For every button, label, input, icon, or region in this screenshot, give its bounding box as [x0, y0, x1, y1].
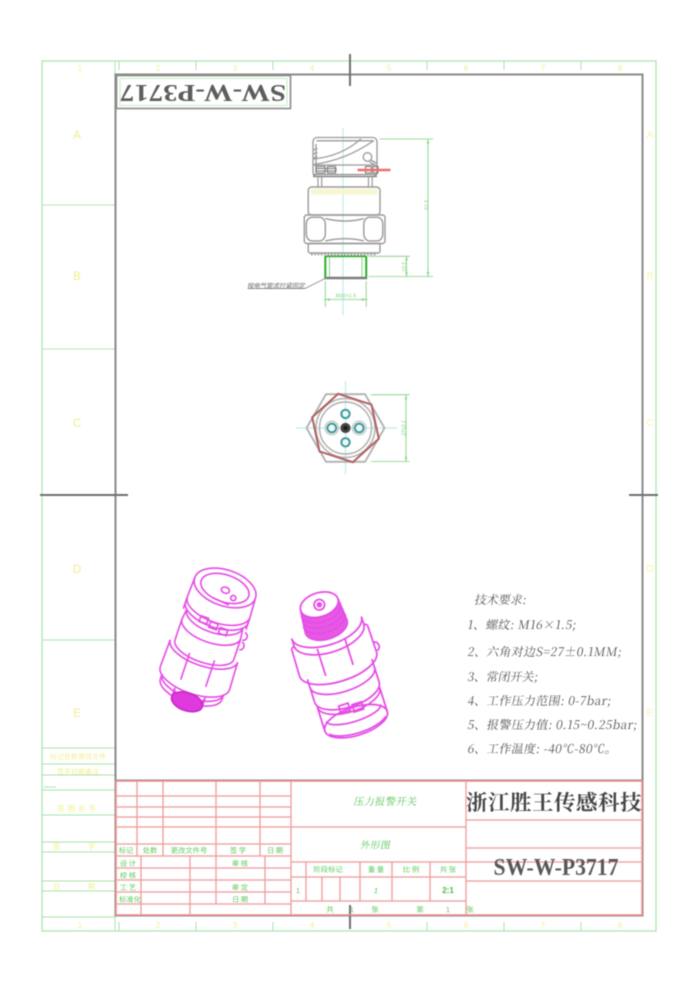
- svg-text:D: D: [646, 564, 653, 575]
- svg-text:B: B: [73, 271, 81, 283]
- svg-text:7: 7: [541, 63, 546, 73]
- svg-text:51.5: 51.5: [425, 200, 431, 210]
- svg-text:1: 1: [374, 886, 378, 895]
- svg-text:SW-W-P3717: SW-W-P3717: [494, 855, 619, 881]
- svg-text:C: C: [646, 418, 653, 429]
- svg-text:1: 1: [446, 907, 450, 914]
- svg-text:6: 6: [464, 920, 469, 930]
- svg-text:7: 7: [541, 920, 546, 930]
- svg-text:10.5: 10.5: [402, 262, 408, 272]
- svg-text:E: E: [647, 708, 654, 719]
- svg-text:B: B: [647, 271, 654, 282]
- svg-text:2:1: 2:1: [442, 886, 454, 895]
- svg-text:5: 5: [387, 920, 392, 930]
- svg-text:3: 3: [233, 920, 238, 930]
- svg-text:1: 1: [350, 907, 354, 914]
- svg-text:1: 1: [78, 63, 83, 73]
- svg-text:27±0.1: 27±0.1: [402, 420, 408, 436]
- svg-text:1: 1: [296, 886, 300, 895]
- svg-text:C: C: [73, 418, 81, 430]
- svg-text:6: 6: [464, 63, 469, 73]
- svg-text:2: 2: [156, 63, 161, 73]
- svg-text:8: 8: [618, 63, 623, 73]
- svg-text:A: A: [647, 130, 654, 141]
- svg-text:2: 2: [156, 920, 161, 930]
- svg-text:4: 4: [310, 920, 315, 930]
- svg-text:A: A: [73, 130, 81, 142]
- svg-text:4: 4: [310, 63, 315, 73]
- svg-text:3: 3: [233, 63, 238, 73]
- svg-text:M16×1.5: M16×1.5: [336, 294, 356, 300]
- svg-text:1: 1: [78, 920, 83, 930]
- svg-text:D: D: [73, 564, 81, 576]
- svg-text:SW-W-P3717: SW-W-P3717: [120, 79, 286, 105]
- svg-text:5: 5: [387, 63, 392, 73]
- svg-text:E: E: [73, 708, 81, 720]
- svg-text:8: 8: [618, 920, 623, 930]
